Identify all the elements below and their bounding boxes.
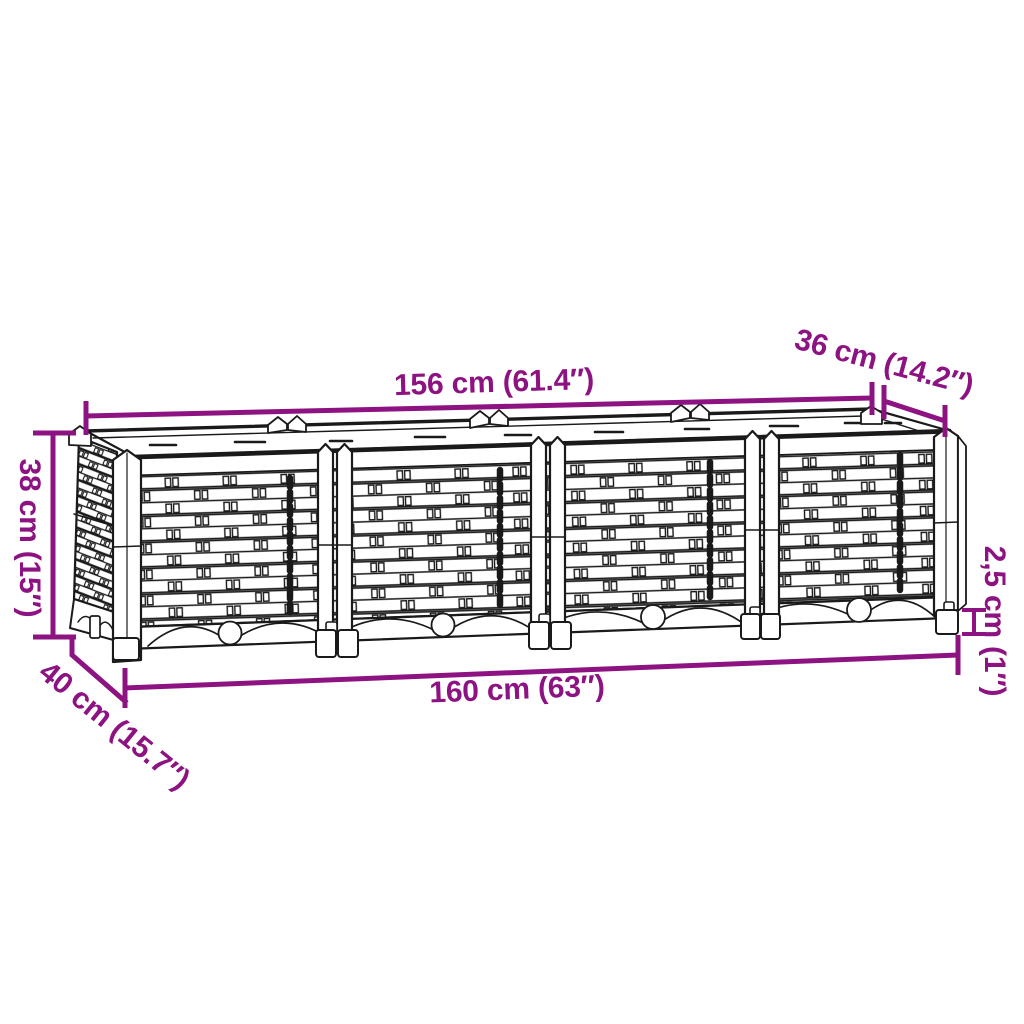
- left-back-foot: [90, 616, 100, 638]
- foot-pair-3a: [741, 614, 760, 639]
- dim-label-base-width: 160 cm (63″): [429, 669, 606, 710]
- planter-line-art: [0, 0, 1024, 1024]
- foot-pair-2a: [529, 622, 549, 649]
- left-side-panel: [69, 426, 117, 613]
- foot-pair-3b: [761, 614, 780, 639]
- dim-label-height: 38 cm (15″): [12, 459, 46, 618]
- right-side-sliver: [958, 436, 966, 611]
- planter-drawing: [69, 404, 966, 662]
- dimension-diagram: 156 cm (61.4″) 36 cm (14.2″) 38 cm (15″)…: [0, 0, 1024, 1024]
- foot-front-left: [113, 638, 139, 660]
- dim-label-top-width: 156 cm (61.4″): [393, 363, 594, 403]
- dim-label-foot-height: 2,5 cm (1″): [977, 546, 1011, 697]
- drainage-hole-3: [641, 605, 665, 629]
- drainage-hole-1: [219, 622, 242, 645]
- corner-post-right: [934, 428, 958, 615]
- foot-pair-1a: [316, 630, 336, 657]
- foot-pair-1b: [338, 630, 358, 657]
- corner-post-left: [113, 450, 141, 662]
- drainage-hole-4: [847, 598, 871, 622]
- foot-front-right: [936, 610, 958, 634]
- foot-pair-2b: [551, 622, 571, 649]
- drainage-hole-2: [432, 614, 455, 637]
